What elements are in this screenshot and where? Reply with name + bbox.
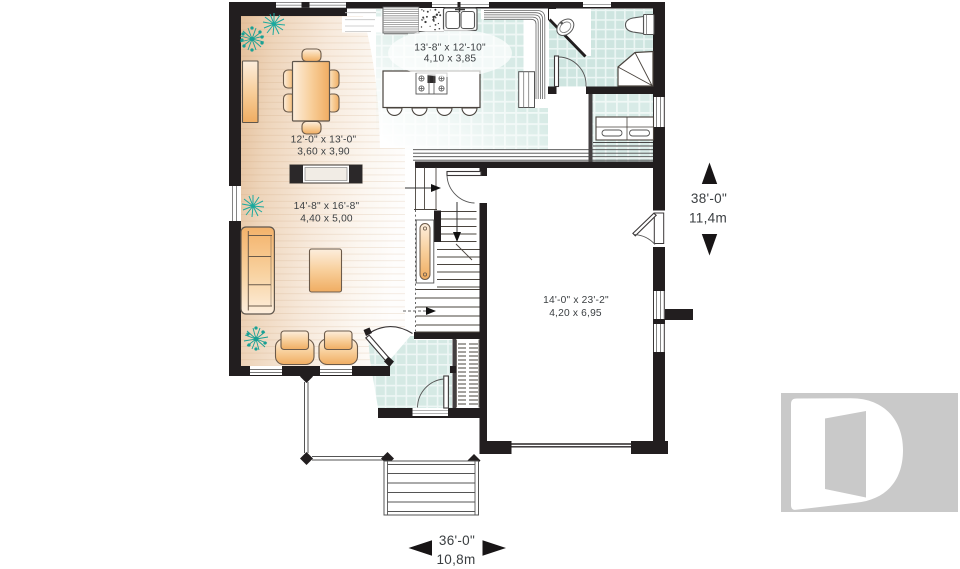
svg-text:4,10 x 3,85: 4,10 x 3,85 — [424, 54, 477, 65]
svg-text:36'-0": 36'-0" — [439, 533, 475, 548]
svg-text:13'-8" x 12'-10": 13'-8" x 12'-10" — [414, 43, 486, 54]
svg-text:3,60 x 3,90: 3,60 x 3,90 — [297, 147, 350, 158]
svg-text:4,20 x 6,95: 4,20 x 6,95 — [549, 308, 602, 319]
svg-text:11,4m: 11,4m — [689, 211, 727, 226]
svg-text:14'-0" x 23'-2": 14'-0" x 23'-2" — [543, 295, 609, 306]
svg-text:14'-8" x 16'-8": 14'-8" x 16'-8" — [294, 201, 360, 212]
svg-text:38'-0": 38'-0" — [691, 191, 727, 206]
svg-text:10,8m: 10,8m — [436, 552, 475, 567]
svg-text:12'-0" x 13'-0": 12'-0" x 13'-0" — [291, 135, 357, 146]
svg-text:4,40 x 5,00: 4,40 x 5,00 — [300, 214, 353, 225]
